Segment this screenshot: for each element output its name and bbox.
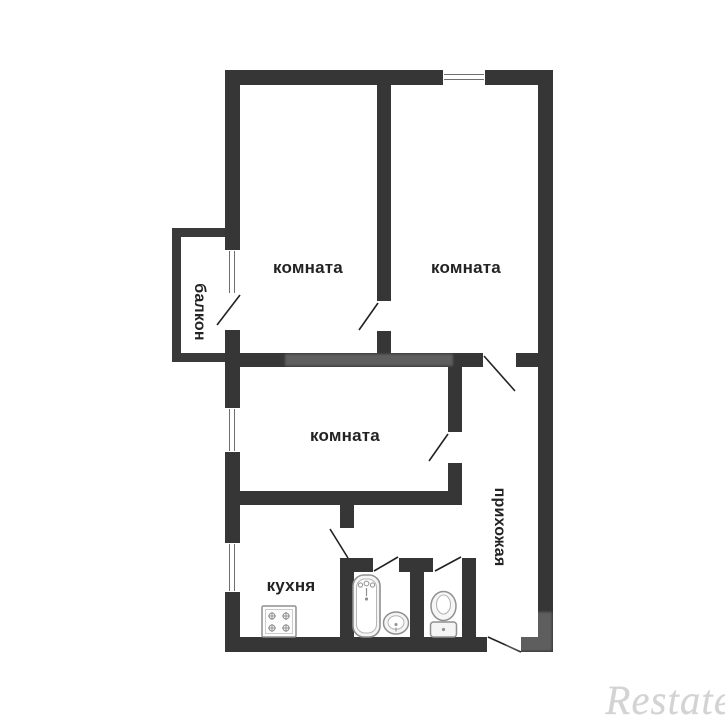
watermark-artifact	[506, 612, 552, 651]
wall-room-middle-bottom	[225, 491, 462, 505]
balcony-wall-top	[172, 228, 225, 237]
bathtub-icon	[353, 575, 380, 637]
room-label-top-right: комната	[431, 258, 501, 278]
kitchen-label: кухня	[267, 576, 316, 596]
wall-kitchen-right-upper	[340, 505, 354, 528]
balcony-label: балкон	[190, 283, 208, 340]
balcony-wall-left	[172, 228, 181, 362]
room-label-top-left: комната	[273, 258, 343, 278]
wall-below-top-rooms-stub	[516, 353, 538, 367]
wall-bath-toilet-divider	[410, 572, 424, 637]
wall-right	[538, 70, 553, 652]
window-icon	[443, 70, 485, 85]
door-swing-icon	[484, 356, 515, 391]
toilet-icon	[431, 592, 457, 638]
door-swing-icon	[330, 529, 348, 558]
sink-icon	[384, 612, 409, 634]
stove-icon	[262, 606, 296, 637]
floor-plan: комната комната комната кухня балкон при…	[0, 0, 725, 725]
door-swing-icon	[429, 434, 448, 461]
watermark-text: Restate	[605, 676, 725, 724]
wall-divider-rooms-1-2	[377, 85, 391, 301]
hallway-label: прихожая	[490, 488, 508, 567]
wall-divider-rooms-1-2-stub	[377, 331, 391, 353]
wall-top-left-segment	[225, 70, 443, 85]
wall-bathroom-left	[340, 558, 354, 637]
wall-room-middle-right-upper	[448, 367, 462, 432]
window-icon	[225, 543, 240, 592]
wall-bathroom-top-b	[399, 558, 433, 572]
wall-left-segment-1	[225, 70, 240, 250]
wall-bathroom-top-a	[354, 558, 373, 572]
door-swing-icon	[435, 557, 461, 571]
wall-bottom-left-segment	[225, 637, 487, 652]
wall-toilet-right	[462, 558, 476, 637]
room-label-middle: комната	[310, 426, 380, 446]
balcony-wall-bottom	[172, 353, 225, 362]
wall-left-segment-2	[225, 330, 240, 408]
watermark-artifact	[285, 354, 453, 366]
door-swing-icon	[374, 557, 398, 571]
door-swing-icon	[359, 303, 378, 330]
window-icon	[225, 408, 240, 452]
window-icon	[225, 250, 240, 294]
door-swing-icon	[217, 295, 240, 325]
